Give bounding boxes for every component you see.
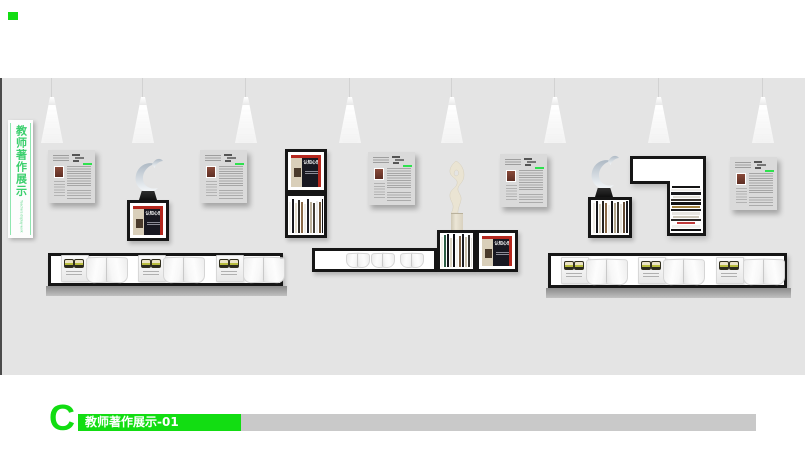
stacked-book: [673, 196, 700, 198]
sign-rule-left: [10, 123, 11, 235]
display-shelf: [48, 253, 283, 286]
sheet-title-bar: 教师著作展示-01: [78, 414, 241, 431]
glasses-book: [61, 255, 89, 282]
book-spine: [599, 204, 601, 233]
book-spine: [623, 202, 625, 233]
author-portrait: [375, 169, 383, 179]
pendant-light: [544, 78, 566, 143]
open-book-right-page: [382, 253, 395, 268]
book-cover-illustration: [136, 219, 143, 228]
open-book: [743, 258, 785, 284]
book-title-lines: [66, 271, 82, 277]
sheet-title: 教师著作展示-01: [85, 415, 179, 429]
box-interior: 认知心理学: [480, 234, 514, 268]
poster-heading-lines: [205, 155, 221, 162]
light-cone: [752, 105, 774, 143]
stacked-book: [677, 222, 694, 224]
glasses-lens-right: [651, 261, 661, 270]
poster-heading-marks: [72, 153, 85, 162]
figure-sculpture-shape: [444, 161, 468, 213]
light-cord: [245, 78, 246, 99]
display-box-cover-column: 认知心理学: [285, 149, 327, 193]
stacked-book: [672, 186, 700, 188]
book-spine: [471, 238, 473, 267]
author-portrait: [507, 171, 515, 181]
poster-paragraph-lines: [67, 166, 91, 187]
sheet-title-bar-extension: [241, 414, 756, 431]
book-spine: [611, 201, 613, 233]
book-spine: [453, 234, 455, 267]
swan-sculpture-shape: [132, 157, 164, 193]
book-cover-left-panel: [133, 209, 144, 235]
book-spine: [614, 203, 616, 233]
light-socket: [759, 97, 767, 106]
glasses-book: [638, 257, 666, 284]
poster-heading-lines: [53, 155, 69, 162]
glasses-lens-right: [74, 259, 84, 268]
poster-lower-lines: [749, 197, 773, 207]
open-book-left-page: [400, 253, 413, 268]
stacked-book: [672, 225, 700, 227]
swan-sculpture-shape: [588, 154, 620, 190]
light-cone: [235, 105, 257, 143]
sculpture-base: [595, 188, 613, 197]
poster-lower-lines: [519, 194, 543, 204]
book-spine: [617, 202, 619, 233]
book-cover-subtitle-lines: [496, 252, 509, 256]
display-box-books-column: [285, 193, 327, 238]
stacked-book: [671, 219, 700, 221]
book-spine: [444, 235, 446, 267]
poster-paragraph-lines: [387, 168, 411, 189]
open-book: [163, 256, 205, 282]
book-cover-body: 认知心理学: [482, 239, 512, 266]
box-interior: [592, 201, 628, 234]
book-cover-subtitle-lines: [147, 222, 160, 226]
book-spine: [301, 202, 303, 233]
book-title-lines: [643, 273, 659, 279]
open-book-right-page: [411, 253, 424, 268]
book-spine: [289, 202, 291, 233]
open-book-left-page: [346, 253, 359, 268]
bio-poster: [200, 150, 247, 203]
light-cord: [658, 78, 659, 99]
corner-mark: [8, 12, 18, 20]
wall-sign-panel: 教师著作展示 Teachers display work: [8, 120, 33, 238]
book-cover-right-panel: 认知心理学: [144, 209, 163, 235]
poster-left-lines: [206, 181, 217, 198]
glasses-book: [716, 257, 744, 284]
book-spine: [608, 205, 610, 233]
book-spine: [322, 199, 324, 233]
display-box-books-right: [588, 197, 632, 238]
sign-title-vertical: 教师著作展示: [13, 125, 29, 197]
poster-heading-marks: [224, 153, 237, 162]
poster-left-lines: [736, 188, 747, 205]
stacked-book: [671, 202, 701, 204]
open-book: [663, 258, 705, 284]
poster-heading-marks: [754, 160, 767, 169]
poster-paragraph-lines: [519, 170, 543, 191]
stacked-book: [671, 209, 701, 211]
box-interior: 认知心理学: [131, 204, 165, 237]
poster-lower-lines: [387, 192, 411, 202]
book-cover-red-stripe: [160, 209, 163, 235]
open-book-right-page: [683, 259, 705, 286]
book-spine: [459, 236, 461, 267]
open-book-left-page: [163, 257, 185, 284]
book-spine: [468, 235, 470, 267]
open-book-small: [346, 252, 370, 268]
sculpture-pedestal: [451, 213, 463, 231]
shelf-base: [46, 286, 287, 296]
glasses-graphic: [219, 260, 239, 267]
light-cord: [349, 78, 350, 99]
poster-lower-lines: [67, 190, 91, 200]
book-cover-right-panel: 认知心理学: [493, 239, 512, 266]
book-spine: [295, 203, 297, 233]
glasses-graphic: [641, 262, 661, 269]
pendant-light: [441, 78, 463, 143]
light-socket: [448, 97, 456, 106]
book-spine: [319, 202, 321, 233]
glasses-lens-left: [564, 261, 574, 270]
light-cord: [451, 78, 452, 99]
book-title-lines: [143, 271, 159, 277]
stacked-book: [673, 216, 699, 218]
book-cover: 认知心理学: [132, 205, 164, 236]
glasses-lens-right: [574, 261, 584, 270]
book-spine: [447, 234, 449, 267]
poster-paragraph-lines: [749, 173, 773, 194]
open-book-left-page: [371, 253, 384, 268]
sheet-index-letter: C: [49, 400, 75, 436]
book-cover-illustration: [294, 168, 301, 177]
stacked-book: [671, 189, 700, 191]
light-socket: [551, 97, 559, 106]
book-spine: [304, 204, 306, 233]
poster-heading-lines: [735, 162, 751, 169]
display-shelf: [548, 253, 787, 288]
open-book-left-page: [663, 259, 685, 286]
box-interior: 认知心理学: [289, 153, 323, 189]
light-cord: [762, 78, 763, 99]
book-spine: [313, 203, 315, 233]
poster-lower-lines: [219, 190, 243, 200]
pendant-light: [339, 78, 361, 143]
glasses-lens-left: [641, 261, 651, 270]
glasses-graphic: [564, 262, 584, 269]
bio-poster: [48, 150, 95, 203]
glasses-graphic: [141, 260, 161, 267]
book-cover-right-panel: 认知心理学: [302, 158, 321, 187]
stacked-book: [671, 192, 701, 194]
swan-sculpture-left: [132, 157, 164, 200]
glasses-graphic: [64, 260, 84, 267]
book-spine: [310, 202, 312, 233]
pendant-light: [235, 78, 257, 143]
glasses-lens-left: [64, 259, 74, 268]
book-spine: [593, 203, 595, 233]
book-title-lines: [221, 271, 237, 277]
stacked-book: [671, 199, 700, 201]
poster-green-dash: [765, 170, 774, 172]
book-spine: [626, 201, 628, 233]
poster-heading-lines: [505, 159, 521, 166]
light-cone: [544, 105, 566, 143]
book-cover-red-stripe: [509, 239, 512, 266]
open-book-right-page: [263, 257, 285, 284]
book-spine: [620, 204, 622, 233]
book-spine: [316, 201, 318, 233]
light-socket: [48, 97, 56, 106]
poster-heading-marks: [392, 155, 405, 164]
glasses-lens-left: [719, 261, 729, 270]
open-book: [586, 258, 628, 284]
box-interior: [289, 197, 323, 234]
book-cover-left-panel: [291, 158, 302, 187]
light-cord: [51, 78, 52, 99]
book-spine: [456, 239, 458, 267]
author-portrait: [207, 167, 215, 177]
book-cover-subtitle-lines: [305, 171, 318, 175]
open-book-right-page: [183, 257, 205, 284]
open-book-left-page: [86, 257, 108, 284]
display-box-cover-middle: 认知心理学: [476, 230, 518, 272]
open-book-right-page: [357, 253, 370, 268]
poster-left-lines: [374, 183, 385, 200]
sign-subtitle-vertical: Teachers display work: [19, 200, 22, 232]
poster-green-dash: [235, 163, 244, 165]
book-cover-body: 认知心理学: [291, 158, 321, 187]
book-cover-body: 认知心理学: [133, 209, 163, 235]
sculpture-base: [139, 191, 157, 200]
book-spine: [450, 238, 452, 267]
glasses-lens-right: [151, 259, 161, 268]
open-book-left-page: [743, 259, 765, 286]
open-book-right-page: [106, 257, 128, 284]
poster-heading-marks: [524, 157, 537, 166]
light-socket: [346, 97, 354, 106]
light-cone: [648, 105, 670, 143]
book-spine: [441, 237, 443, 267]
book-spine: [462, 234, 464, 267]
glasses-book: [216, 255, 244, 282]
poster-left-lines: [54, 181, 65, 198]
light-socket: [655, 97, 663, 106]
stacked-book: [671, 229, 701, 231]
book-spine: [602, 201, 604, 233]
light-socket: [242, 97, 250, 106]
book-cover-title: 认知心理学: [302, 158, 315, 165]
author-portrait: [737, 174, 745, 184]
light-socket: [139, 97, 147, 106]
light-cord: [142, 78, 143, 99]
book-cover-title: 认知心理学: [493, 239, 506, 246]
bio-poster: [730, 157, 777, 210]
glasses-lens-right: [229, 259, 239, 268]
light-cone: [339, 105, 361, 143]
book-cover: 认知心理学: [290, 154, 322, 188]
book-cover: 认知心理学: [481, 235, 513, 267]
poster-paragraph-lines: [219, 166, 243, 187]
book-cover-left-panel: [482, 239, 493, 266]
open-book-left-page: [243, 257, 265, 284]
book-title-lines: [721, 273, 737, 279]
book-spine: [465, 237, 467, 267]
open-book-small: [400, 252, 424, 268]
abstract-figure-sculpture: [444, 161, 468, 230]
glasses-graphic: [719, 262, 739, 269]
swan-sculpture-right: [588, 154, 620, 197]
book-spine: [292, 199, 294, 233]
display-box-cover-left: 认知心理学: [127, 200, 169, 241]
glasses-book: [561, 257, 589, 284]
light-cone: [441, 105, 463, 143]
glasses-lens-right: [729, 261, 739, 270]
book-title-lines: [566, 273, 582, 279]
open-book-right-page: [606, 259, 628, 286]
light-cone: [132, 105, 154, 143]
sign-rule-right: [30, 123, 31, 235]
light-cone: [41, 105, 63, 143]
pendant-light: [648, 78, 670, 143]
box-interior: [441, 234, 472, 268]
shelf-base: [546, 288, 791, 298]
open-book: [86, 256, 128, 282]
design-board: 教师著作展示 Teachers display work 认知心理学 认知心理学: [0, 0, 805, 456]
display-box-books-middle: [437, 230, 476, 272]
book-spine: [307, 199, 309, 233]
book-cover-red-stripe: [318, 158, 321, 187]
light-cord: [554, 78, 555, 99]
wall-left-edge: [0, 78, 2, 375]
stacked-books-column: [671, 186, 701, 231]
pendant-light: [41, 78, 63, 143]
middle-display-shelf: [312, 248, 437, 272]
book-spine: [596, 201, 598, 233]
poster-heading-lines: [373, 157, 389, 164]
bio-poster: [500, 154, 547, 207]
open-book-right-page: [763, 259, 785, 286]
pendant-light: [752, 78, 774, 143]
pendant-light: [132, 78, 154, 143]
open-book: [243, 256, 285, 282]
book-spine: [605, 203, 607, 233]
poster-green-dash: [535, 167, 544, 169]
glasses-lens-left: [141, 259, 151, 268]
book-cover-title: 认知心理学: [144, 209, 157, 216]
author-portrait: [55, 167, 63, 177]
book-spine: [298, 200, 300, 233]
stacked-book: [672, 206, 701, 208]
open-book-left-page: [586, 259, 608, 286]
poster-green-dash: [83, 163, 92, 165]
stacked-book: [672, 212, 701, 214]
glasses-book: [138, 255, 166, 282]
glasses-lens-left: [219, 259, 229, 268]
book-cover-illustration: [485, 249, 492, 258]
open-book-small: [371, 252, 395, 268]
bio-poster: [368, 152, 415, 205]
poster-left-lines: [506, 185, 517, 202]
poster-green-dash: [403, 165, 412, 167]
